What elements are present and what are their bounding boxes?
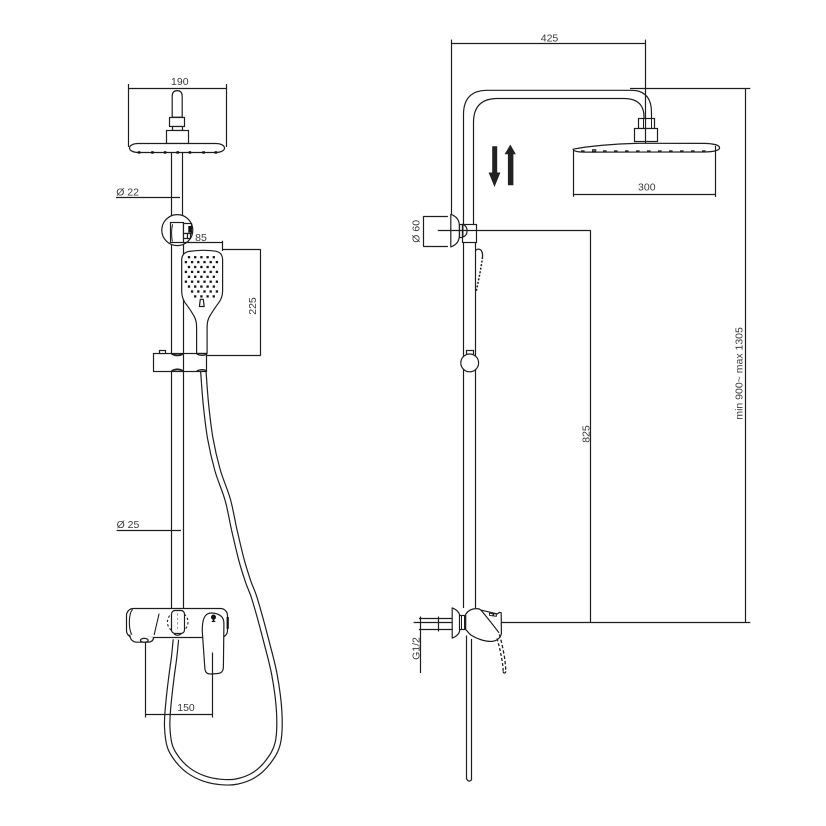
svg-text:190: 190 [171, 76, 189, 88]
svg-text:G1/2: G1/2 [411, 637, 423, 660]
svg-text:85: 85 [195, 232, 207, 244]
svg-text:Ø 22: Ø 22 [116, 186, 139, 198]
svg-text:300: 300 [638, 181, 656, 193]
svg-text:150: 150 [177, 702, 195, 714]
svg-text:825: 825 [581, 425, 593, 443]
svg-text:min 900~ max 1305: min 900~ max 1305 [733, 327, 745, 420]
svg-text:Ø 60: Ø 60 [411, 220, 423, 243]
svg-text:425: 425 [541, 33, 559, 45]
svg-text:225: 225 [247, 297, 259, 315]
svg-text:Ø 25: Ø 25 [117, 519, 140, 531]
